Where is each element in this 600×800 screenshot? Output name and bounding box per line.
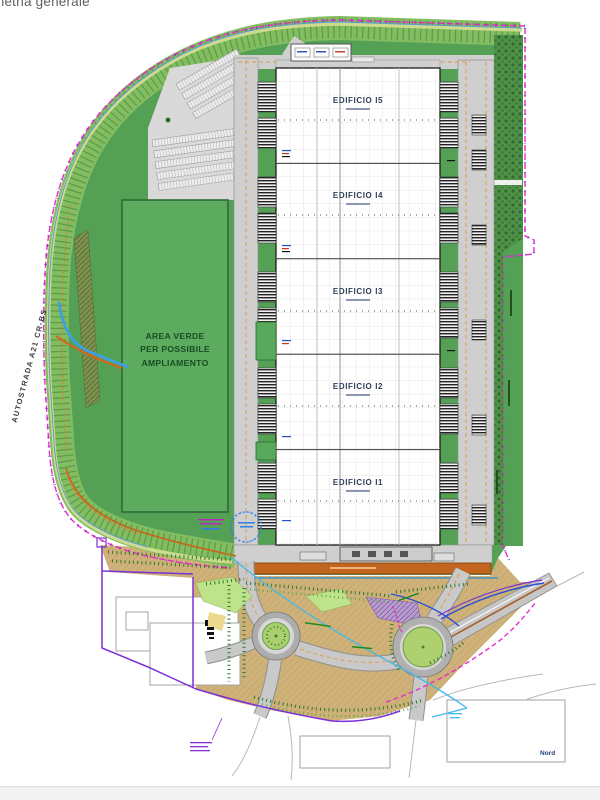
warehouse-building (276, 60, 440, 545)
viewer-bottom-strip (0, 786, 600, 800)
building-label-i1: EDIFICIO I1 (293, 478, 423, 492)
area-verde-label: AREA VERDE PER POSSIBILE AMPLIAMENTO (122, 330, 228, 370)
building-label-i2: EDIFICIO I2 (293, 382, 423, 396)
document-title-fragment: metria generale (0, 0, 90, 9)
roundabout-west (252, 612, 300, 660)
small-purple-note (190, 742, 212, 751)
north-label: Nord (540, 750, 555, 757)
building-label-i4: EDIFICIO I4 (293, 191, 423, 205)
site-plan-canvas[interactable]: metria generale AUTOSTRADA A21 CR-BS EDI… (0, 0, 600, 799)
site-plan-drawing (0, 0, 600, 799)
building-label-i3: EDIFICIO I3 (293, 287, 423, 301)
building-label-i5: EDIFICIO I5 (293, 96, 423, 110)
